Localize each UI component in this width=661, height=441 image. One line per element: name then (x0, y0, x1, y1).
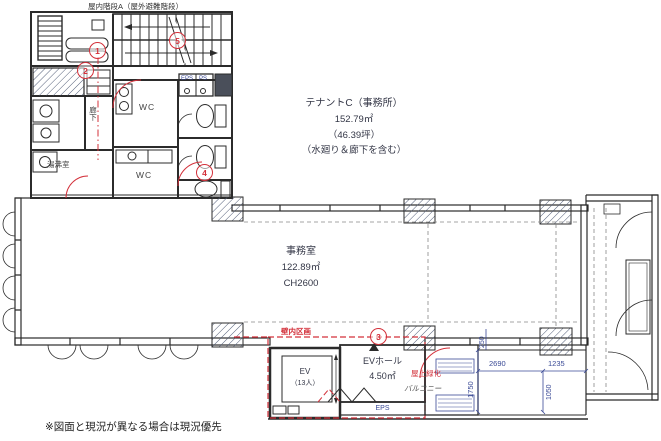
tenant-info-block: テナントC（事務所） 152.79㎡ （46.39坪） （水廻り＆廊下を含む） (280, 99, 428, 156)
tenant-note: （水廻り＆廊下を含む） (280, 146, 428, 156)
dim-1050: 1050 (546, 384, 553, 400)
dim-2690: 2690 (489, 360, 506, 368)
corridor-label: 廊下 (89, 106, 97, 121)
dim-1750: 1750 (467, 381, 475, 398)
balcony-label: バルコニー (404, 385, 441, 393)
tenant-title: テナントC（事務所） (280, 99, 428, 109)
footer-note: ※図面と現況が異なる場合は現況優先 (45, 422, 222, 433)
stair-label: 屋内階段A（屋外避難階段） (88, 3, 183, 11)
window-swings (3, 212, 198, 359)
floor-plan: 屋内階段A（屋外避難階段） テナントC（事務所） 152.79㎡ （46.39坪… (0, 0, 661, 441)
dim-1235: 1235 (548, 360, 565, 368)
photo-marker-5: 5 (169, 32, 186, 49)
wall-partition-note: 壁内区画 (281, 328, 311, 336)
tenant-tsubo: （46.39坪） (280, 131, 428, 141)
tenant-area: 152.79㎡ (280, 115, 428, 125)
dim-250: 250 (479, 336, 486, 348)
office-ceiling-height: CH2600 (255, 279, 347, 289)
photo-marker-4: 4 (196, 164, 213, 181)
eps-top-label: EPS (181, 76, 193, 82)
photo-marker-1: 1 (89, 42, 106, 59)
floor-plan-drawing (0, 0, 661, 441)
ps-top-label: PS (199, 76, 207, 82)
wc-upper-label: WC (139, 103, 155, 112)
wc-lower-label: WC (136, 171, 152, 180)
rooftop-green-note: 屋上緑化 (411, 370, 441, 378)
elevator-label: EV (285, 368, 325, 376)
eps-bottom-label: EPS (340, 405, 425, 412)
office-area: 122.89㎡ (255, 263, 347, 273)
office-name: 事務室 (255, 247, 347, 257)
ev-hall-label: EVホール (340, 357, 425, 366)
office-room-label: 事務室 122.89㎡ CH2600 (255, 247, 347, 288)
photo-marker-3: 3 (370, 328, 387, 345)
photo-marker-2: 2 (77, 62, 94, 79)
elevator-capacity: （13人） (283, 380, 327, 387)
hot-water-room-label: 湯沸室 (47, 161, 70, 169)
balcony-right-strip (586, 195, 658, 400)
